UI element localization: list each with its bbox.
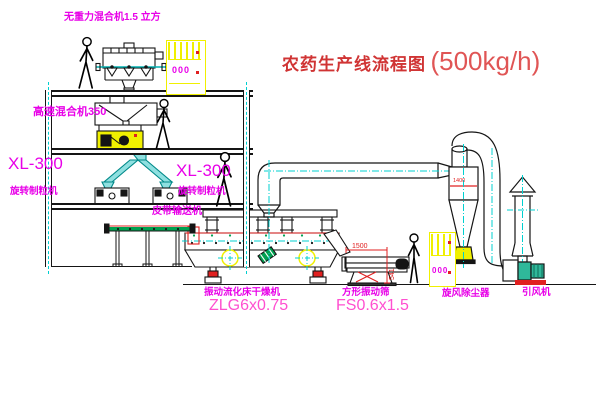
right-wall-centerline: [246, 82, 247, 274]
label-weightless-mixer: 无重力混合机1.5 立方: [64, 13, 161, 23]
label-granulator-right: 旋转制粒机: [178, 187, 226, 197]
label-screen-model: FS0.6x1.5: [336, 298, 409, 314]
dimension-screen-height: 541: [389, 268, 396, 280]
dimension-screen-length: 1500: [352, 243, 368, 250]
person-icon: [74, 36, 100, 90]
induced-draft-fan: [503, 260, 546, 285]
label-xl300-left: XL-300: [8, 155, 63, 172]
person-icon: [150, 98, 178, 150]
diagram-title-text: 农药生产线流程图: [282, 55, 426, 74]
cabinet-trim: [169, 83, 200, 84]
diagram-capacity: (500kg/h): [430, 46, 540, 76]
building-roof-slab: [45, 90, 253, 97]
dimension-cyclone: 1400: [453, 179, 465, 185]
cabinet-display: 000: [432, 266, 448, 275]
label-fan: 引风机: [522, 288, 551, 298]
indicator-dot: [196, 71, 199, 74]
control-cabinet: 000: [429, 232, 456, 287]
label-highspeed-mixer: 高速混合机350: [33, 107, 106, 118]
control-cabinet: 000: [166, 40, 206, 95]
indicator-dot: [448, 241, 451, 244]
cabinet-display: 000: [172, 65, 190, 75]
label-dryer-model: ZLG6x0.75: [209, 298, 288, 314]
label-cyclone: 旋风除尘器: [442, 289, 490, 299]
label-xl300-right: XL-300: [176, 162, 231, 179]
weightless-mixer: [93, 40, 170, 90]
person-icon: [402, 231, 426, 286]
label-granulator-left: 旋转制粒机: [10, 187, 58, 197]
belt-conveyor: [104, 220, 196, 268]
indicator-dot: [196, 51, 199, 54]
cabinet-vents: [431, 234, 451, 256]
exhaust-elbow-pipe: [258, 163, 438, 205]
diagram-title: 农药生产线流程图 (500kg/h): [282, 46, 540, 77]
label-belt-conveyor: 皮带输送机: [152, 207, 202, 217]
indicator-dot: [448, 271, 451, 274]
flow-diagram-canvas: 农药生产线流程图 (500kg/h): [0, 0, 600, 403]
